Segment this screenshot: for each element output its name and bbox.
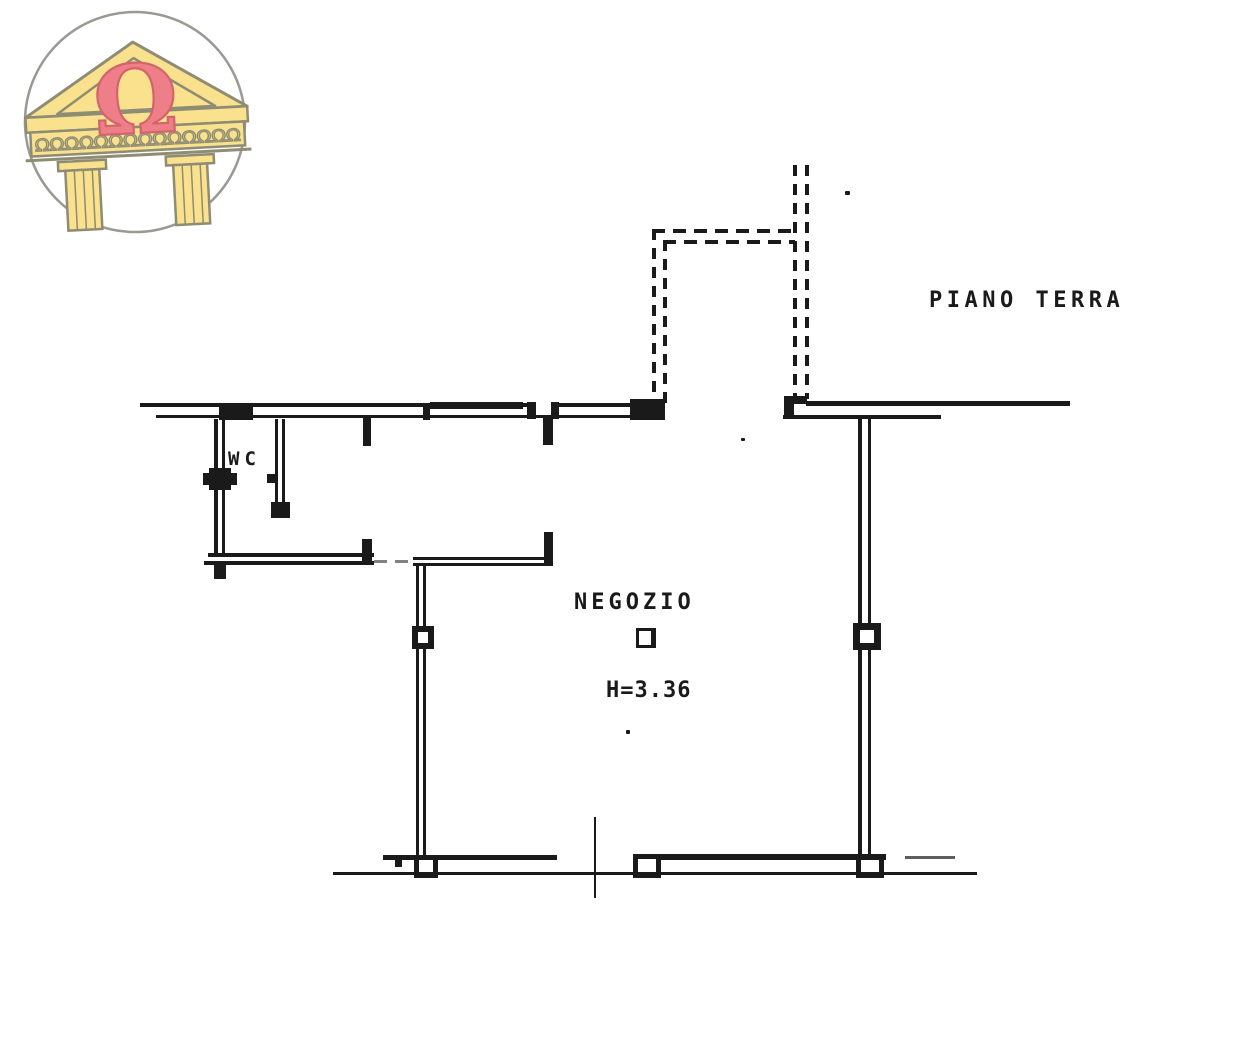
shop-right-pier [853, 623, 881, 650]
dashed-duct-vertical [793, 165, 797, 399]
top-wall-lower-right [783, 415, 941, 419]
wc-bottom-wall [208, 553, 374, 557]
room-label: NEGOZIO [574, 590, 695, 615]
dashed-duct-horizontal [663, 240, 795, 244]
shop-left-wall [416, 563, 419, 856]
top-wall-band [430, 402, 523, 409]
right-window-sill [633, 854, 886, 860]
dashed-duct-vertical [663, 240, 667, 404]
dashed-duct-vertical [652, 229, 656, 404]
door-jamb [423, 403, 430, 420]
door-jamb [527, 402, 536, 419]
shop-top-wall [413, 557, 553, 560]
jamb-stub [543, 418, 553, 445]
facade-baseline [333, 872, 977, 875]
sill-tick [395, 858, 402, 867]
floor-label: PIANO TERRA [929, 288, 1124, 313]
floor-plan-page: { "colors": { "ink": "#1a1a1a", "paper":… [0, 0, 1252, 1058]
scan-speck [845, 191, 850, 195]
scan-speck [626, 730, 630, 734]
door-opening-gap [536, 400, 551, 409]
wc-bottom-wall [204, 561, 374, 565]
door-jamb [551, 402, 559, 419]
top-wall-upper-left [140, 403, 652, 407]
shop-left-pier [412, 626, 434, 649]
wc-bottom-stub [214, 565, 226, 579]
scan-speck [741, 438, 745, 441]
wc-partition-wall [282, 419, 285, 509]
jamb-stub [363, 418, 371, 446]
top-wall-upper-right [806, 401, 1070, 406]
faint-wall-link [374, 560, 413, 563]
top-wall-end-block [630, 399, 665, 420]
height-label: H=3.36 [606, 678, 691, 703]
pillar-symbol [636, 628, 656, 648]
wc-partition-wall [275, 419, 278, 509]
center-axis-tick [594, 817, 596, 898]
wc-wall-cross-pier [209, 468, 231, 490]
dashed-duct-horizontal [652, 229, 795, 233]
dashed-duct-vertical [805, 165, 809, 399]
left-window-sill [383, 855, 557, 860]
top-wall-thick-block [219, 404, 253, 420]
wc-label: WC [228, 448, 261, 470]
shop-top-wall [413, 563, 553, 566]
wc-partition-tick [267, 474, 276, 483]
shop-left-wall [423, 563, 426, 856]
floor-plan: PIANO TERRA WC NEGOZIO H=3.36 [0, 0, 1252, 1058]
faint-dash [905, 856, 955, 859]
wc-partition-foot [271, 502, 290, 518]
